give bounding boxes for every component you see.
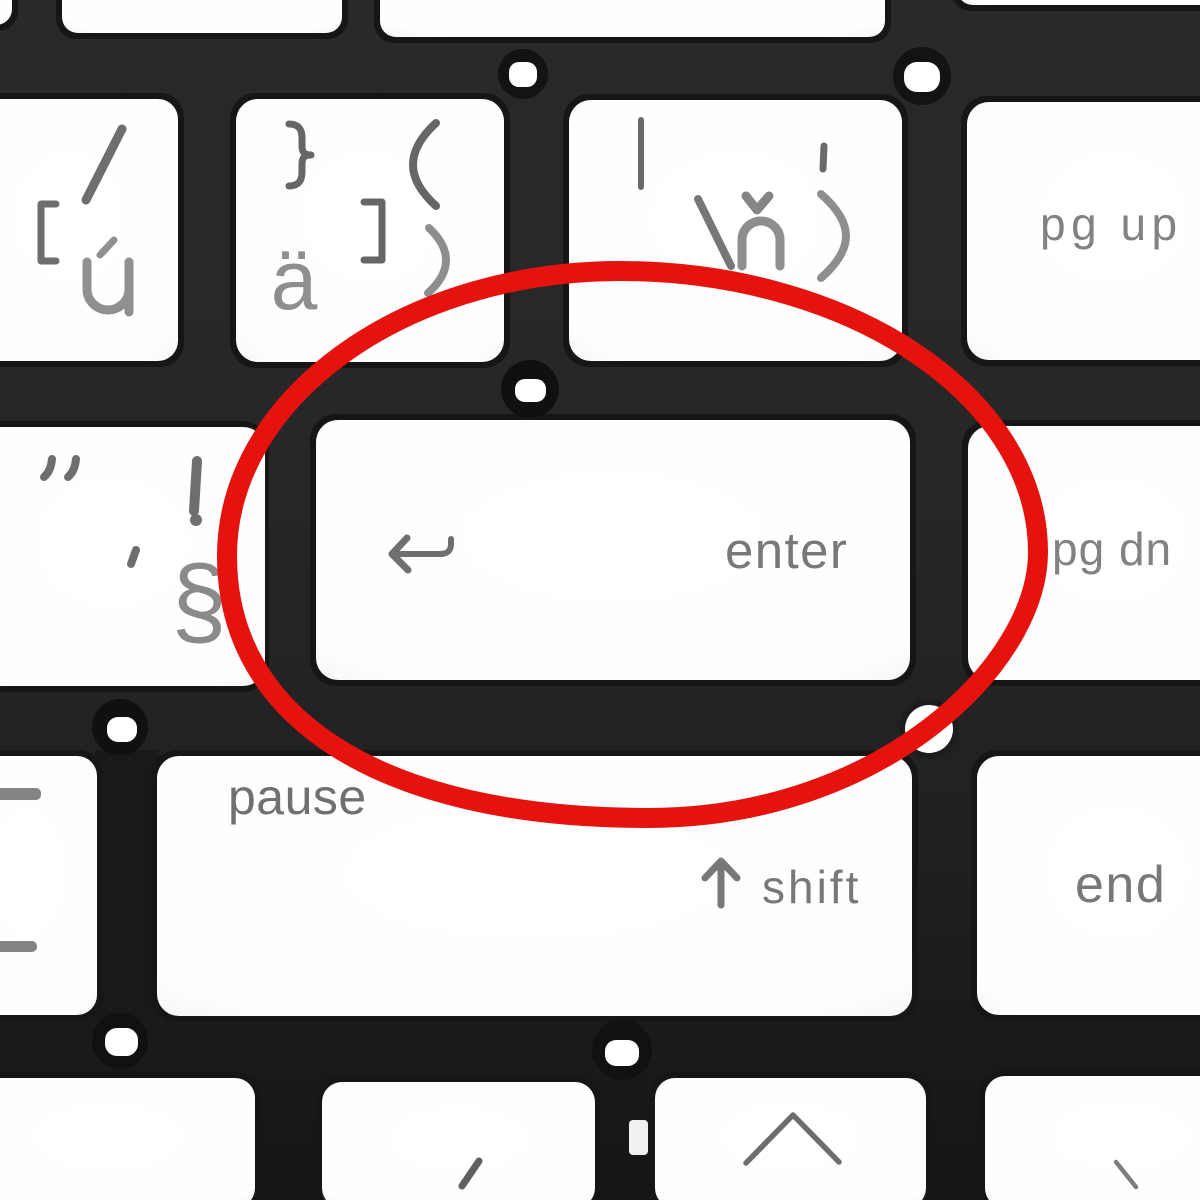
svg-text:pg up: pg up: [1040, 198, 1183, 250]
svg-text:end: end: [1075, 856, 1166, 914]
svg-text:ä: ä: [271, 233, 318, 327]
svg-text:enter: enter: [725, 522, 848, 579]
svg-text:pause: pause: [228, 769, 367, 825]
svg-text:shift: shift: [762, 861, 861, 913]
svg-text:pg dn: pg dn: [1052, 523, 1172, 575]
